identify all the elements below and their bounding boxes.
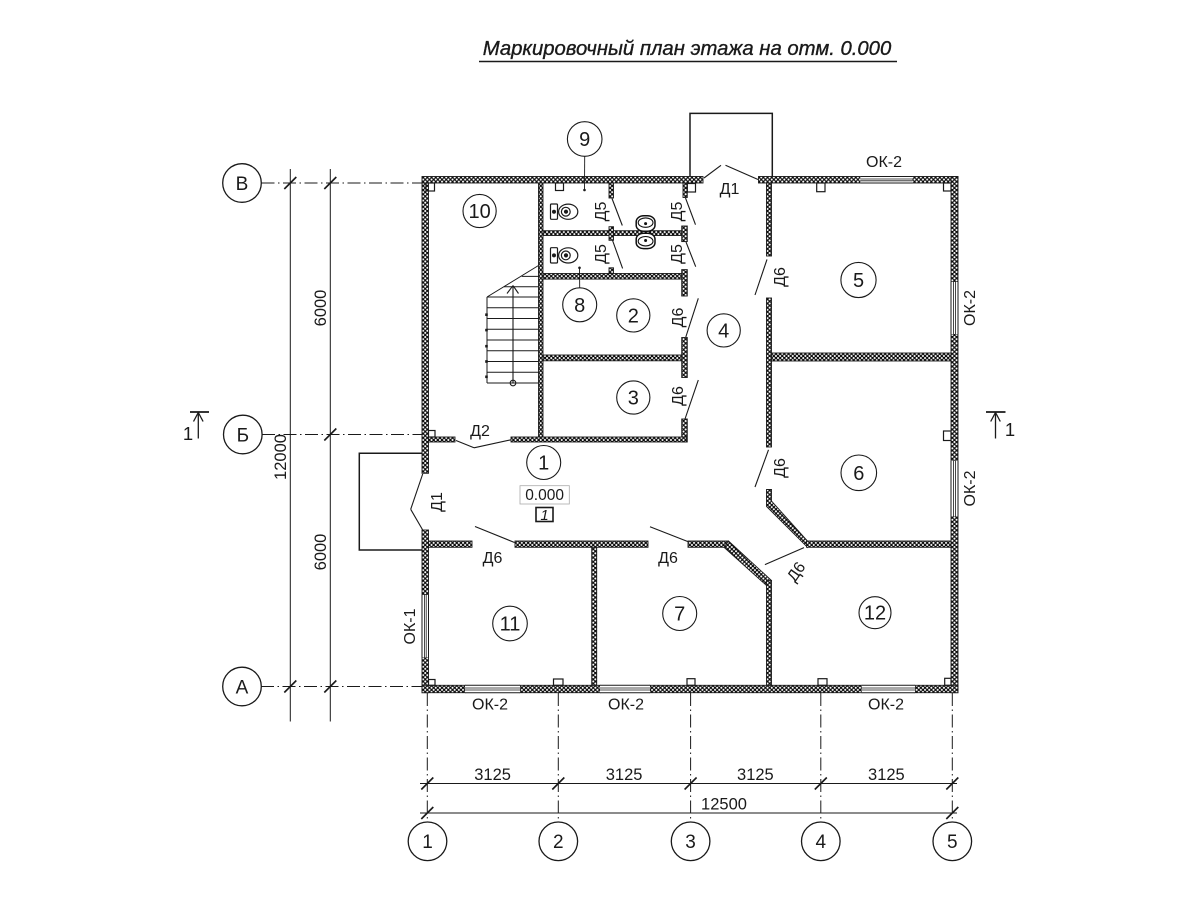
svg-text:10: 10 (468, 201, 490, 223)
svg-text:1: 1 (422, 832, 433, 853)
svg-text:6: 6 (853, 463, 864, 485)
svg-text:1: 1 (540, 507, 548, 524)
svg-text:12000: 12000 (272, 434, 290, 480)
svg-text:Маркировочный план этажа на от: Маркировочный план этажа на отм. 0.000 (483, 38, 892, 60)
svg-text:1: 1 (538, 453, 549, 475)
svg-text:4: 4 (816, 832, 827, 853)
svg-text:7: 7 (674, 604, 685, 626)
svg-text:А: А (236, 677, 249, 698)
svg-text:Д6: Д6 (658, 550, 678, 567)
svg-text:Б: Б (237, 425, 249, 446)
svg-text:4: 4 (718, 320, 729, 342)
svg-text:Д1: Д1 (720, 181, 740, 198)
svg-text:ОК-2: ОК-2 (472, 697, 508, 714)
svg-text:Д6: Д6 (670, 386, 687, 406)
svg-text:3125: 3125 (474, 766, 511, 784)
svg-text:3125: 3125 (737, 766, 774, 784)
svg-text:11: 11 (500, 614, 521, 636)
svg-text:3125: 3125 (606, 766, 643, 784)
svg-text:12500: 12500 (701, 796, 747, 814)
svg-text:0.000: 0.000 (525, 487, 564, 504)
svg-text:ОК-2: ОК-2 (962, 470, 979, 506)
svg-text:2: 2 (553, 832, 564, 853)
svg-text:ОК-2: ОК-2 (608, 697, 644, 714)
svg-text:6000: 6000 (312, 534, 330, 571)
svg-text:5: 5 (853, 270, 864, 292)
svg-text:6000: 6000 (312, 290, 330, 327)
svg-text:Д6: Д6 (772, 458, 789, 478)
svg-text:1: 1 (183, 423, 193, 444)
svg-text:ОК-2: ОК-2 (866, 154, 902, 171)
svg-text:ОК-2: ОК-2 (962, 290, 979, 326)
svg-text:1: 1 (1005, 419, 1015, 440)
svg-text:9: 9 (579, 129, 590, 151)
svg-text:2: 2 (628, 305, 639, 327)
svg-text:3: 3 (685, 832, 696, 853)
svg-text:Д5: Д5 (593, 244, 610, 264)
svg-text:ОК-2: ОК-2 (868, 697, 904, 714)
svg-text:8: 8 (574, 295, 585, 317)
svg-text:Д1: Д1 (429, 492, 446, 512)
svg-text:Д5: Д5 (669, 202, 686, 222)
svg-text:3: 3 (628, 388, 639, 410)
svg-text:ОК-1: ОК-1 (402, 608, 419, 644)
svg-text:Д2: Д2 (470, 423, 490, 440)
svg-text:Д6: Д6 (772, 267, 789, 287)
svg-text:Д5: Д5 (669, 244, 686, 264)
svg-text:Д6: Д6 (483, 550, 503, 567)
svg-text:Д6: Д6 (670, 308, 687, 328)
svg-text:В: В (236, 174, 249, 195)
svg-text:Д5: Д5 (593, 202, 610, 222)
svg-text:5: 5 (947, 832, 958, 853)
svg-text:3125: 3125 (868, 766, 905, 784)
svg-text:12: 12 (864, 603, 886, 625)
